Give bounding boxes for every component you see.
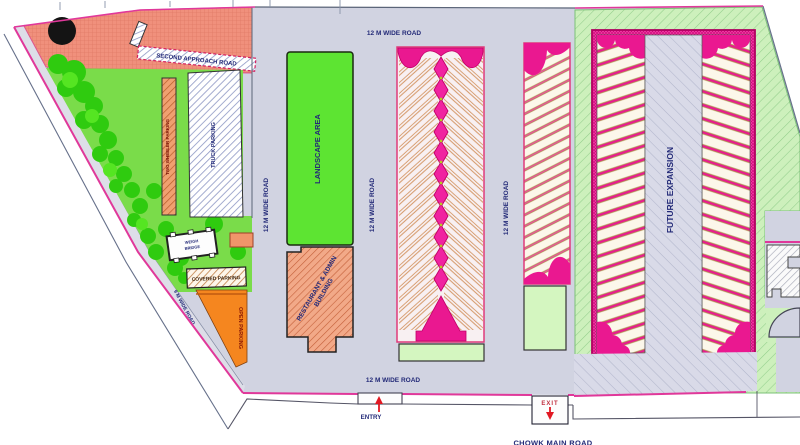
svg-text:12 M WIDE ROAD: 12 M WIDE ROAD [369,178,376,232]
svg-text:OPEN PARKING: OPEN PARKING [237,307,243,349]
svg-text:ENTRY: ENTRY [361,414,383,421]
svg-text:EXIT: EXIT [541,401,558,407]
svg-text:12 M WIDE ROAD: 12 M WIDE ROAD [366,377,420,384]
svg-text:FUTURE EXPANSION: FUTURE EXPANSION [665,147,675,233]
svg-text:12 M WIDE ROAD: 12 M WIDE ROAD [263,178,270,232]
svg-text:TWO WHEELER PARKING: TWO WHEELER PARKING [165,119,170,175]
svg-text:12 M WIDE ROAD: 12 M WIDE ROAD [503,181,510,235]
svg-text:CHOWK MAIN ROAD: CHOWK MAIN ROAD [513,439,592,445]
svg-text:12 M WIDE ROAD: 12 M WIDE ROAD [367,30,421,37]
svg-text:LANDSCAPE AREA: LANDSCAPE AREA [313,114,322,184]
svg-text:TRUCK PARKING: TRUCK PARKING [211,122,217,168]
